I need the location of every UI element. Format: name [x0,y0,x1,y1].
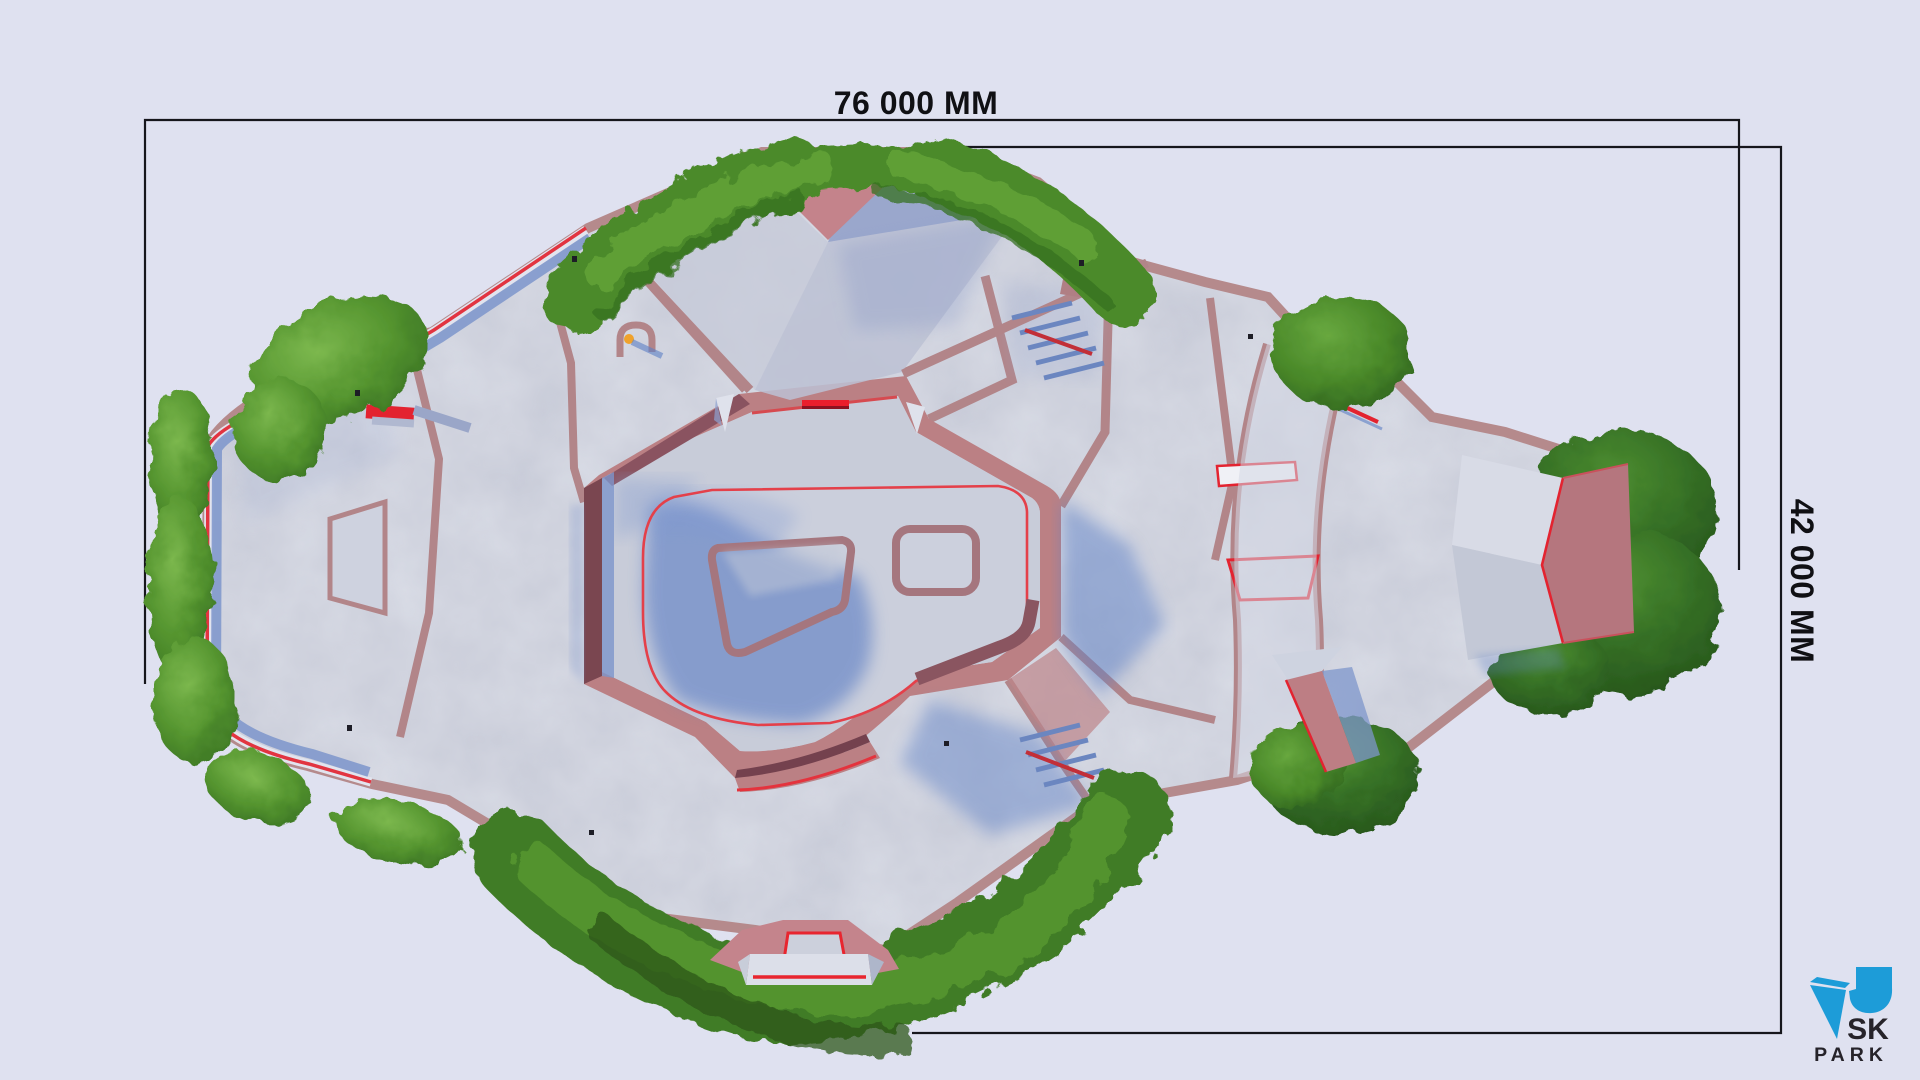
svg-text:PARK: PARK [1814,1044,1888,1066]
svg-text:76 000 MM: 76 000 MM [834,85,999,121]
svg-text:42 000 MM: 42 000 MM [1784,499,1820,664]
svg-text:SK: SK [1847,1013,1889,1046]
